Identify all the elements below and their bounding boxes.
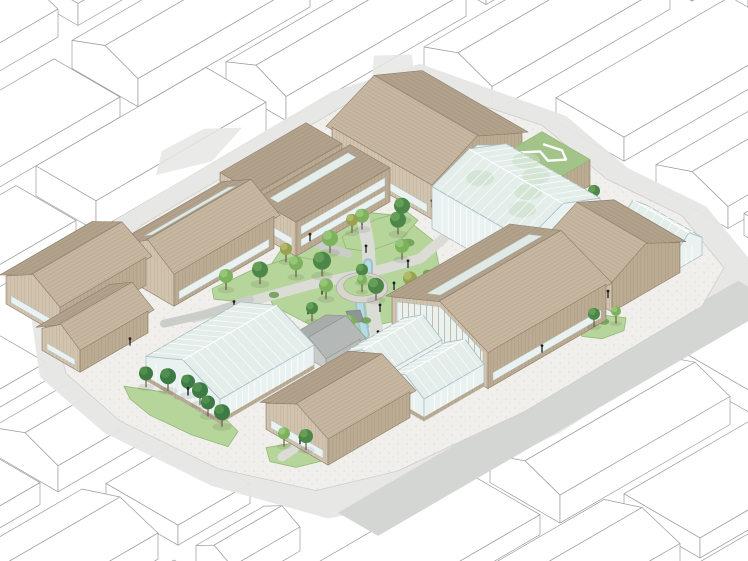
axonometric-site-plan: [0, 0, 748, 561]
masterplan-illustration: [0, 0, 748, 561]
